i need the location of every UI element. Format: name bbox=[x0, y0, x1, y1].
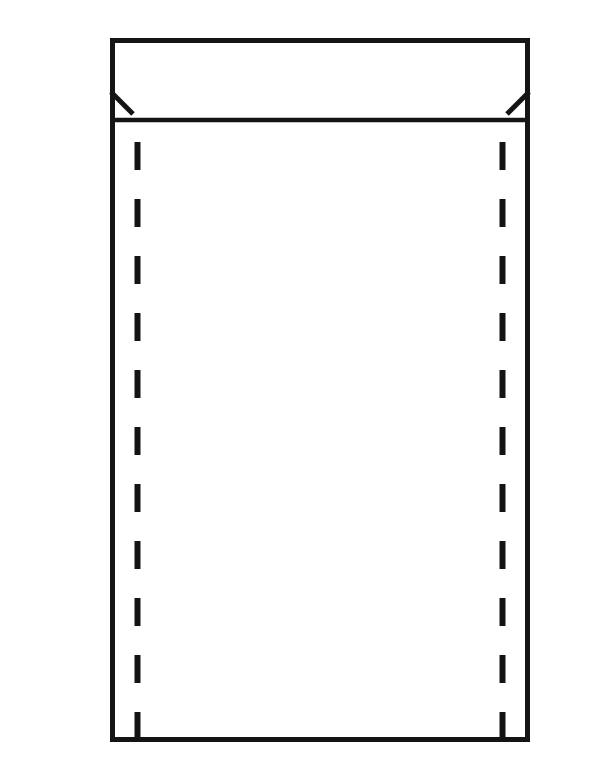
envelope-diagram bbox=[0, 0, 600, 783]
envelope-outline bbox=[113, 41, 528, 740]
envelope-svg bbox=[0, 0, 600, 783]
